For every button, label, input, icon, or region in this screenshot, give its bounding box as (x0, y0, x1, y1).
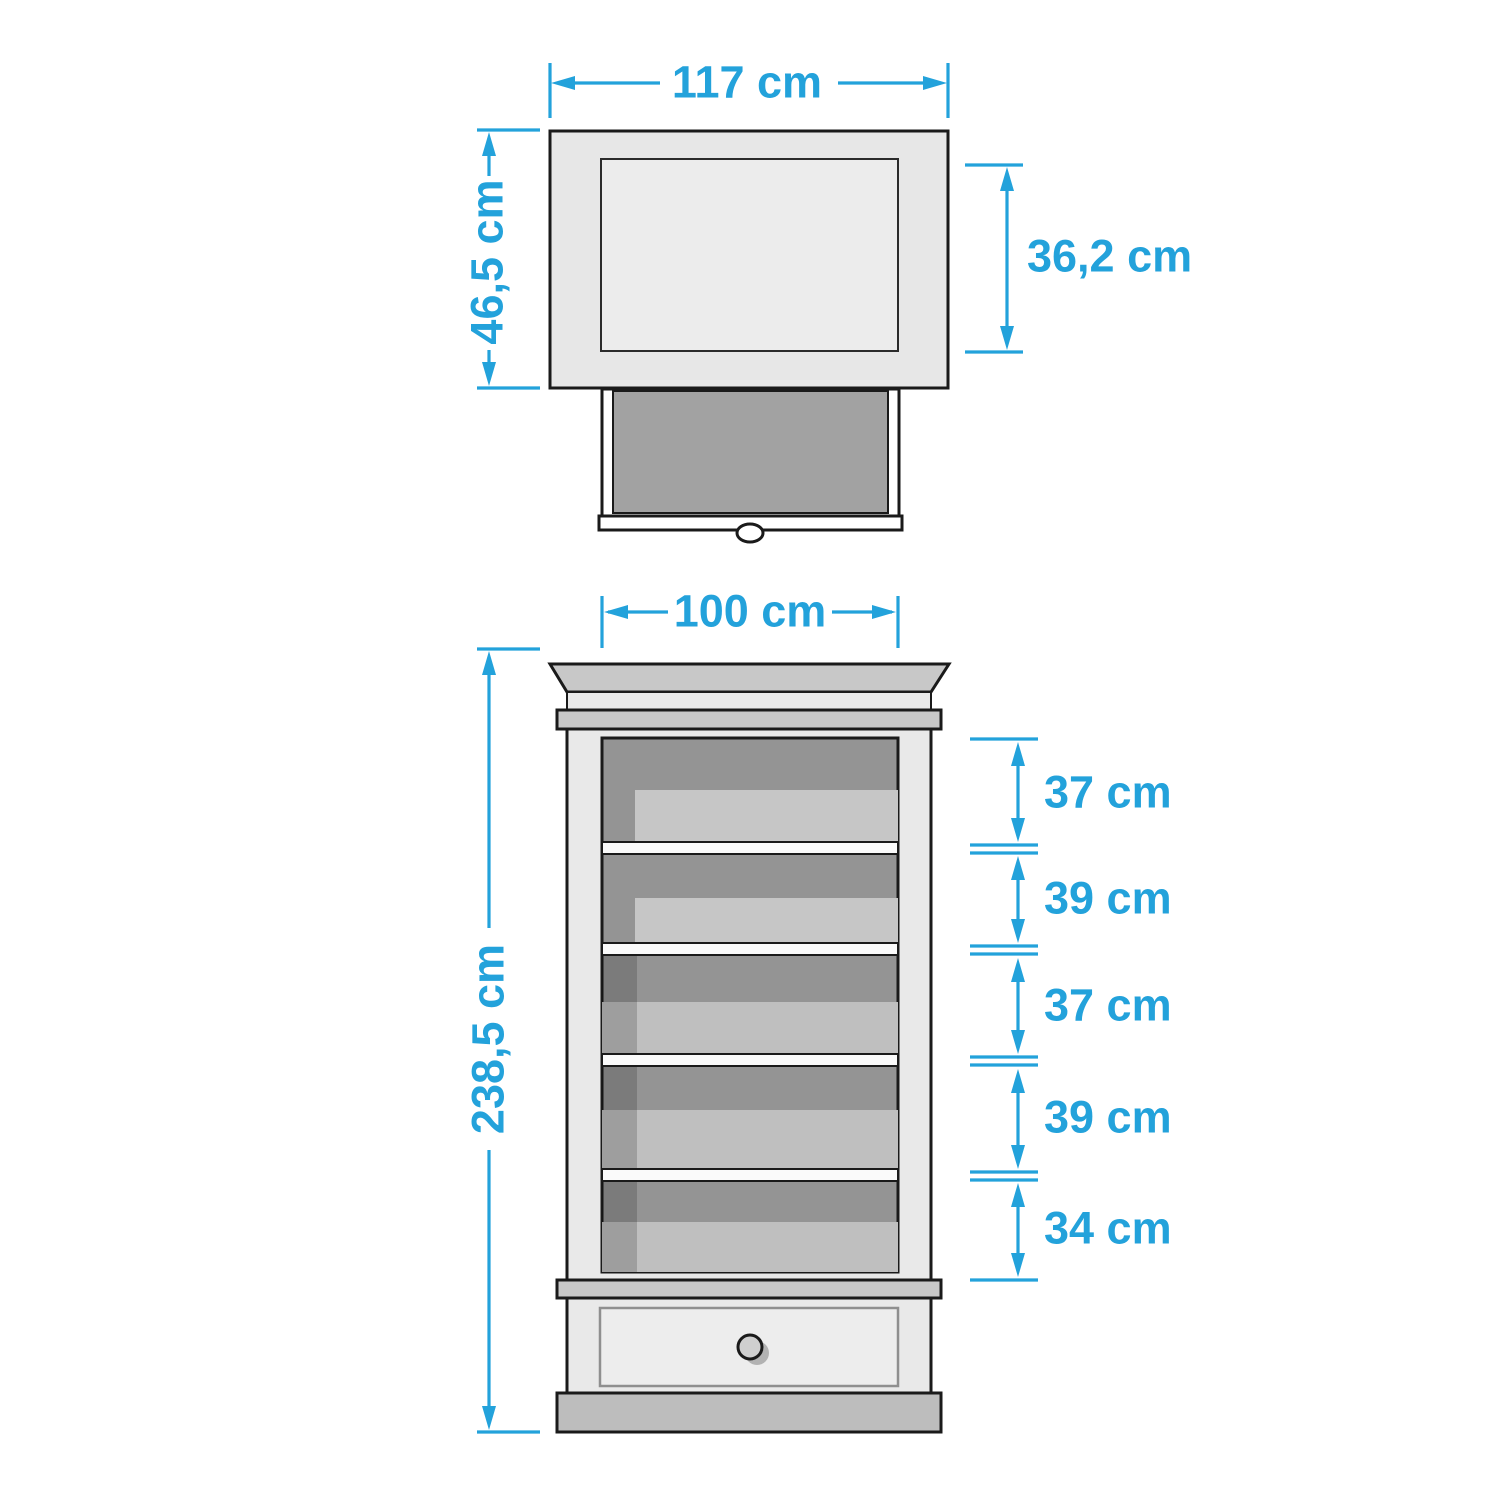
front-view-crown (550, 664, 949, 692)
front-view-frieze (567, 692, 931, 710)
dim-label-top-depth: 46,5 cm (465, 179, 510, 344)
top-view-drawer-interior (613, 391, 888, 513)
shelf-surface (635, 898, 898, 943)
dim-label-compartment-2: 39 cm (1044, 876, 1172, 921)
shelf-surface (602, 1002, 898, 1054)
dimension-diagram: 117 cm 46,5 cm 36,2 cm 100 cm 238,5 cm 3… (0, 0, 1500, 1500)
top-view (550, 131, 948, 542)
shelf-surface (602, 1110, 898, 1169)
furniture-drawing (0, 0, 1500, 1500)
dim-label-compartment-4: 39 cm (1044, 1095, 1172, 1140)
front-view (550, 664, 949, 1432)
shelf-surface (602, 1222, 898, 1272)
dim-label-top-inner-depth: 36,2 cm (1027, 234, 1192, 279)
shelf-divider (602, 943, 898, 955)
shelf-divider (602, 1054, 898, 1066)
shelf-divider (602, 842, 898, 854)
dim-compartment-arrows (1011, 742, 1025, 1277)
top-view-tabletop-panel (601, 159, 898, 351)
shelf-divider (602, 1169, 898, 1181)
dim-label-front-width: 100 cm (674, 589, 827, 634)
top-view-drawer-knob (737, 524, 763, 542)
dim-top-inner-depth-arrow (965, 165, 1023, 352)
dim-label-top-width: 117 cm (672, 60, 822, 105)
side-shadow (602, 955, 637, 1054)
front-view-bottom-molding (557, 1280, 941, 1298)
front-view-top-molding (557, 710, 941, 729)
dim-label-front-height: 238,5 cm (466, 944, 511, 1134)
front-view-plinth (557, 1393, 941, 1432)
dim-label-compartment-3: 37 cm (1044, 983, 1172, 1028)
dim-compartment-ticks (970, 739, 1038, 1280)
front-view-drawer-knob (738, 1335, 762, 1359)
side-shadow (602, 1066, 637, 1169)
dim-label-compartment-1: 37 cm (1044, 770, 1172, 815)
shelf-surface (635, 790, 898, 842)
side-shadow (602, 1181, 637, 1272)
dim-label-compartment-5: 34 cm (1044, 1206, 1172, 1251)
